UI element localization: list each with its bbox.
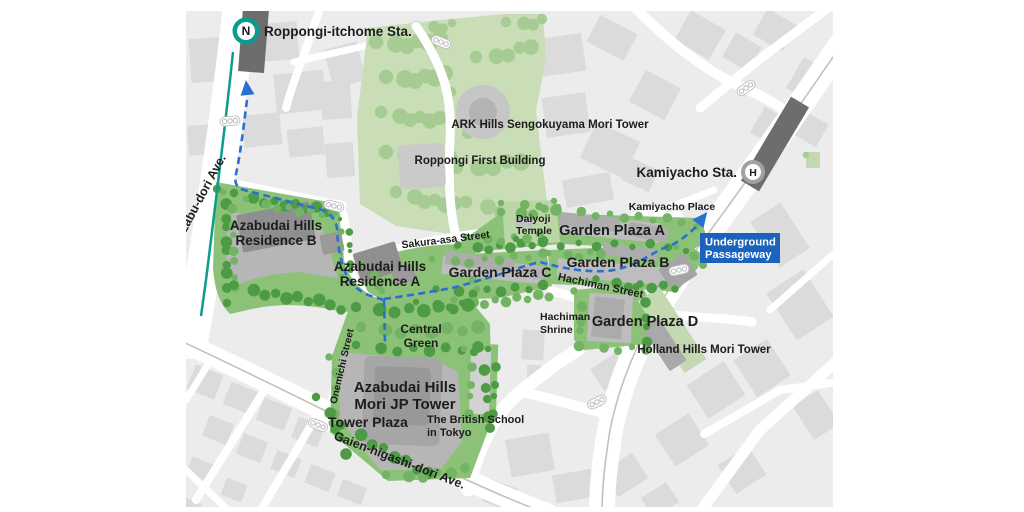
hibiya-line-icon: H xyxy=(741,160,765,184)
label-residence-b-line1: Azabudai Hills xyxy=(230,218,322,233)
tree xyxy=(229,280,238,289)
tree xyxy=(537,14,547,24)
tree xyxy=(223,299,231,307)
label-hachiman-shrine-line2: Shrine xyxy=(540,324,573,336)
tree xyxy=(340,448,352,460)
tree xyxy=(614,347,622,355)
tree xyxy=(678,218,686,226)
tree xyxy=(413,299,419,305)
label-british-school-line1: The British School xyxy=(427,414,524,426)
tree xyxy=(538,238,548,248)
label-residence-a-line2: Residence A xyxy=(340,274,421,289)
tree xyxy=(347,242,353,248)
tree xyxy=(304,297,313,306)
tree xyxy=(491,393,497,399)
tree xyxy=(545,293,554,302)
tree xyxy=(592,212,600,220)
label-ark-hills: ARK Hills Sengokuyama Mori Tower xyxy=(451,119,649,131)
tree xyxy=(448,304,458,314)
building xyxy=(241,112,282,148)
label-holland-hills: Holland Hills Mori Tower xyxy=(637,344,771,356)
tree xyxy=(433,111,447,125)
tree xyxy=(325,299,336,310)
tree xyxy=(483,395,491,403)
tree xyxy=(438,23,448,33)
underground-passageway-badge: Underground Passageway xyxy=(700,233,780,263)
label-garden-plaza-c: Garden Plaza C xyxy=(449,264,552,280)
tree xyxy=(379,70,393,84)
tree xyxy=(479,364,491,376)
tree xyxy=(599,343,609,353)
tree xyxy=(375,342,387,354)
tree xyxy=(683,248,689,254)
tree xyxy=(497,237,505,245)
tree xyxy=(460,196,472,208)
tree xyxy=(497,208,505,216)
tree xyxy=(491,381,499,389)
label-daiyoji-line2: Temple xyxy=(516,225,552,237)
tree xyxy=(480,300,489,309)
label-roppongi-first: Roppongi First Building xyxy=(415,155,546,167)
label-residence-a-line1: Azabudai Hills xyxy=(334,259,426,274)
tree xyxy=(496,286,507,297)
label-mori-jp-line1: Azabudai Hills xyxy=(354,379,457,396)
tree xyxy=(429,256,435,262)
tree xyxy=(485,346,491,352)
tree xyxy=(523,39,539,55)
tree xyxy=(524,296,531,303)
label-garden-plaza-a: Garden Plaza A xyxy=(559,223,665,239)
tree xyxy=(659,281,668,290)
label-residence-b-line2: Residence B xyxy=(235,233,316,248)
underground-passageway-line1: Underground xyxy=(705,237,776,249)
label-mori-jp-line2: Mori JP Tower xyxy=(354,396,455,413)
tree xyxy=(467,381,475,389)
tree xyxy=(338,217,342,221)
tree xyxy=(501,17,511,27)
tree xyxy=(492,296,499,303)
tree xyxy=(448,19,456,27)
tree xyxy=(533,289,544,300)
namboku-line-icon: N xyxy=(233,18,260,45)
tree xyxy=(577,207,587,217)
label-garden-plaza-b: Garden Plaza B xyxy=(567,254,670,270)
tree xyxy=(348,249,352,253)
tree xyxy=(663,213,673,223)
tree xyxy=(312,393,320,401)
label-roppongi-itchome-sta: Roppongi-itchome Sta. xyxy=(264,24,412,39)
tree xyxy=(228,204,238,214)
label-central-green-line1: Central xyxy=(400,322,441,336)
tree xyxy=(498,200,504,206)
tree xyxy=(450,296,457,303)
tree xyxy=(629,344,635,350)
tree xyxy=(525,255,531,261)
underground-passageway-line2: Passageway xyxy=(705,249,772,261)
tree xyxy=(285,204,291,210)
tree xyxy=(467,362,477,372)
tree xyxy=(392,347,402,357)
azabudai-hills-access-map: Underground Passageway N H Roppongi-itch… xyxy=(0,0,1024,512)
tree xyxy=(382,471,390,479)
tree xyxy=(578,342,584,348)
tree xyxy=(441,342,451,352)
tree xyxy=(338,228,345,235)
tree xyxy=(570,287,577,294)
tree xyxy=(390,186,402,198)
label-daiyoji-line1: Daiyoji xyxy=(516,213,551,225)
label-kamiyacho-sta: Kamiyacho Sta. xyxy=(636,165,737,180)
tree xyxy=(336,305,345,314)
tree xyxy=(483,286,490,293)
label-tower-plaza: Tower Plaza xyxy=(328,414,408,430)
tree xyxy=(470,51,482,63)
tree xyxy=(457,326,467,336)
tree xyxy=(551,198,557,204)
tree xyxy=(607,210,613,216)
tree xyxy=(230,257,238,265)
tree xyxy=(525,286,532,293)
tree xyxy=(610,239,618,247)
tree xyxy=(428,21,440,33)
tree xyxy=(273,205,281,213)
crosswalk-icon xyxy=(220,116,241,127)
tree xyxy=(461,346,467,352)
label-british-school-line2: in Tokyo xyxy=(427,427,472,439)
tree xyxy=(473,242,484,253)
tree xyxy=(803,152,809,158)
tree xyxy=(482,255,488,261)
tree xyxy=(481,383,491,393)
tree xyxy=(557,242,565,250)
tree xyxy=(292,291,303,302)
tree xyxy=(629,244,635,250)
tree xyxy=(646,283,657,294)
tree xyxy=(484,245,493,254)
building xyxy=(287,126,326,158)
tree xyxy=(511,283,520,292)
tree xyxy=(221,267,233,279)
tree xyxy=(520,200,530,210)
tree xyxy=(471,320,485,334)
tree xyxy=(461,298,475,312)
tree xyxy=(645,239,655,249)
label-central-green-line2: Green xyxy=(404,336,439,350)
tree xyxy=(575,240,581,246)
tree xyxy=(535,202,543,210)
tree xyxy=(528,242,535,249)
tree xyxy=(271,289,280,298)
tree xyxy=(460,463,470,473)
tree xyxy=(379,145,393,159)
tree xyxy=(346,228,354,236)
tree xyxy=(576,327,583,334)
tree xyxy=(351,302,361,312)
tree xyxy=(295,207,305,217)
tree xyxy=(230,189,238,197)
label-kamiyacho-place: Kamiyacho Place xyxy=(629,201,716,213)
tree xyxy=(388,306,400,318)
tree xyxy=(243,196,249,202)
tree xyxy=(671,285,678,292)
tree xyxy=(512,293,521,302)
tree xyxy=(404,303,414,313)
tree xyxy=(231,274,237,280)
building xyxy=(325,142,355,178)
tree xyxy=(501,297,512,308)
tree xyxy=(480,199,496,215)
tree xyxy=(248,284,261,297)
tree xyxy=(510,252,518,260)
tree xyxy=(555,204,561,210)
tree xyxy=(491,362,501,372)
tree xyxy=(441,322,453,334)
tree xyxy=(313,293,326,306)
tree xyxy=(259,290,270,301)
tree xyxy=(375,106,387,118)
tree xyxy=(261,199,271,209)
building xyxy=(320,80,353,120)
tree xyxy=(470,348,478,356)
tree xyxy=(538,248,548,258)
tree xyxy=(505,242,516,253)
tree xyxy=(325,353,332,360)
svg-text:N: N xyxy=(242,24,251,38)
svg-text:H: H xyxy=(749,167,757,179)
tree xyxy=(280,292,293,305)
tree xyxy=(356,322,366,332)
tree xyxy=(689,251,699,261)
building xyxy=(541,92,590,138)
tree xyxy=(467,393,473,399)
label-hachiman-shrine-line1: Hachiman xyxy=(540,311,590,323)
building xyxy=(505,432,555,477)
tree xyxy=(501,49,515,63)
tree xyxy=(620,213,630,223)
tree xyxy=(433,301,445,313)
tree xyxy=(417,304,431,318)
label-garden-plaza-d: Garden Plaza D xyxy=(592,314,698,330)
tree xyxy=(538,280,549,291)
tree xyxy=(220,189,226,195)
